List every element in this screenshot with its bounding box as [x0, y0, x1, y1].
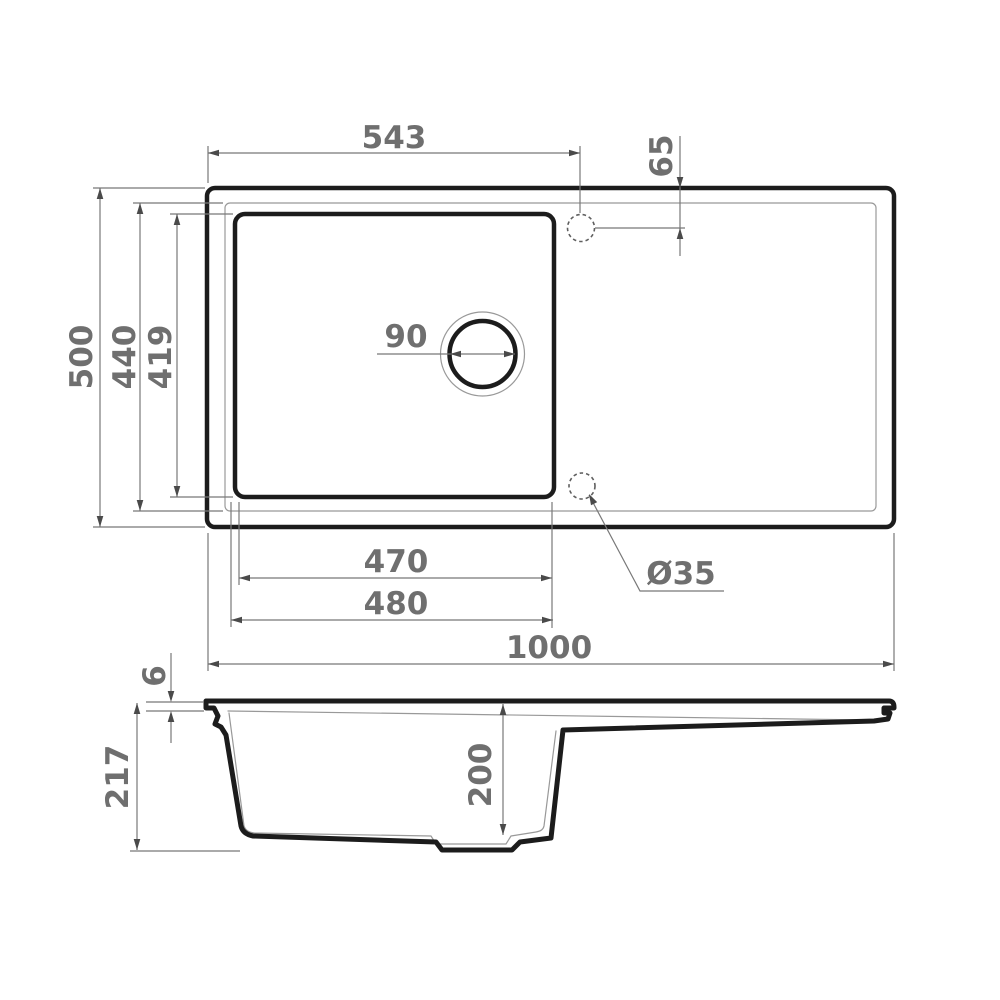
arrow-419-top	[174, 214, 181, 225]
arrow-500-top	[97, 188, 104, 199]
arrow-200-bottom	[500, 824, 507, 835]
top-view-labels: 543 65 500 440 419 90 470 480 1000 Ø35	[64, 120, 716, 666]
side-view-labels: 6 217 200	[100, 665, 499, 809]
arrow-480-left	[231, 617, 242, 624]
top-view-outlines	[207, 188, 894, 527]
side-view-thin-edges	[228, 711, 866, 844]
arrow-6-bottom	[168, 711, 175, 722]
dim-65-label: 65	[644, 134, 680, 177]
dim-217	[130, 703, 240, 851]
arrow-543-left	[208, 150, 219, 157]
dim-440-label: 440	[107, 325, 143, 390]
inner-edge-outline	[225, 203, 876, 511]
top-view-thin-edges	[225, 203, 876, 511]
dim-6-label: 6	[137, 665, 173, 687]
arrow-470-left	[239, 575, 250, 582]
tap-holes	[568, 215, 596, 500]
side-view: 6 217 200	[100, 653, 894, 851]
back-rim-edge-line	[228, 711, 866, 720]
side-view-dim-lines	[130, 653, 503, 851]
dim-419-label: 419	[143, 325, 179, 390]
arrow-480-right	[542, 617, 553, 624]
outer-rim-outline	[207, 188, 894, 527]
dim-200-label: 200	[463, 743, 499, 808]
arrow-500-bottom	[97, 516, 104, 527]
top-view-arrows	[97, 150, 894, 668]
dim-500-label: 500	[64, 325, 100, 390]
arrow-470-right	[541, 575, 552, 582]
dim-90-label: 90	[384, 319, 427, 355]
arrow-440-top	[137, 203, 144, 214]
side-view-arrows	[134, 691, 507, 850]
sink-technical-drawing: 543 65 500 440 419 90 470 480 1000 Ø35	[0, 0, 1000, 1000]
arrow-419-bottom	[174, 486, 181, 497]
arrow-1000-left	[208, 661, 219, 668]
dim-470-label: 470	[364, 544, 429, 580]
dim-217-label: 217	[100, 745, 136, 810]
dim-419	[170, 214, 233, 497]
faucet-hole-circle	[568, 215, 595, 242]
arrow-217-bottom	[134, 839, 141, 850]
arrow-440-bottom	[137, 500, 144, 511]
waste-hole-circle	[569, 473, 595, 499]
dim-1000-label: 1000	[506, 630, 592, 666]
arrow-65-bottom	[677, 228, 684, 239]
arrow-217-top	[134, 703, 141, 714]
arrow-543-right	[569, 150, 580, 157]
sink-technical-drawing-page: 543 65 500 440 419 90 470 480 1000 Ø35	[0, 0, 1000, 1000]
arrow-1000-right	[883, 661, 894, 668]
dim-480-label: 480	[364, 586, 429, 622]
arrow-hole-leader	[589, 494, 597, 505]
arrow-6-top	[168, 691, 175, 702]
bowl-inner-line	[229, 713, 556, 844]
top-view: 543 65 500 440 419 90 470 480 1000 Ø35	[64, 120, 894, 671]
dim-hole-diameter-label: Ø35	[646, 556, 716, 592]
dim-543-label: 543	[362, 120, 427, 156]
arrow-200-top	[500, 704, 507, 715]
